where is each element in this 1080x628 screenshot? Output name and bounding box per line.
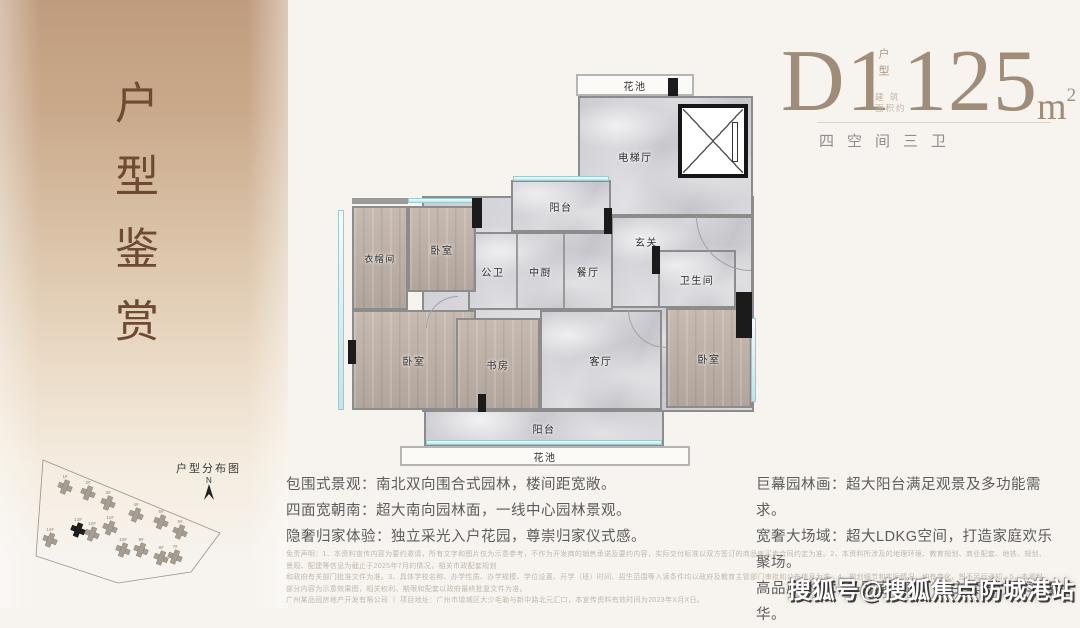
feature-line: 包围式景观：南北双向围合式园林，楼间距宽敞。	[286, 472, 726, 498]
building-marker	[83, 525, 101, 543]
building-label: 1#	[62, 474, 68, 479]
building-marker	[132, 541, 150, 559]
building-label: 2#	[85, 480, 91, 485]
area-unit-sup: 2	[1067, 85, 1077, 106]
room-label: 卧室	[431, 242, 454, 257]
building-label: 9#	[138, 537, 144, 542]
promo-page: { "sidebar": { "title": "户型鉴赏" }, "heade…	[0, 0, 1080, 608]
building-label: 3#	[105, 490, 111, 495]
room-label: 卧室	[698, 351, 721, 366]
feature-line: 四面宽朝南：超大南向园林面，一线中心园林景观。	[286, 498, 726, 524]
building-marker	[56, 478, 74, 496]
room-midband: 公卫 中厨 餐厅	[468, 232, 613, 310]
column	[736, 292, 752, 338]
column	[652, 246, 660, 274]
floor-plan: 花池 电梯厅 阳台 玄关 卫生间 公卫 中厨 餐厅 卧室 衣帽间 卧室 书房	[328, 60, 764, 472]
plan-subtitle: 四空间三卫	[819, 130, 959, 151]
area-prefix-line1: 建 筑	[875, 92, 907, 103]
room-bedroom-top-left: 卧室	[408, 206, 476, 292]
building-marker-highlight	[69, 521, 87, 539]
building-label: 11#	[106, 515, 114, 520]
area-value: 125	[903, 38, 1038, 126]
column	[472, 198, 482, 228]
area-unit: m2	[1037, 86, 1076, 126]
feature-list-left: 包围式景观：南北双向围合式园林，楼间距宽敞。四面宽朝南：超大南向园林面，一线中心…	[286, 472, 726, 550]
building-label: 7#	[172, 544, 178, 549]
feature-line: 巨幕园林画：超大阳台满足观景及多功能需求。	[756, 472, 1066, 524]
disclaimer-line: 免责声明：1、本资料宣传内容为要约邀请，所有文字和图片仅为示意参考，不作为开发商…	[286, 549, 1048, 572]
building-label: 12#	[88, 521, 96, 526]
plan-code-label: 户型	[875, 48, 891, 82]
window	[426, 440, 662, 445]
room-label: 阳台	[533, 421, 556, 436]
room-label: 卧室	[403, 353, 426, 368]
building-marker	[152, 549, 170, 567]
room-public-bath: 公卫	[470, 234, 516, 308]
room-label: 客厅	[590, 353, 613, 368]
area-prefix-label: 建 筑 面积约	[875, 92, 907, 114]
elevator-shaft	[678, 104, 748, 178]
plan-info-header: D1 户型 建 筑 面积约 125 m2 四空间三卫	[775, 30, 1075, 160]
room-label: 中厨	[529, 264, 552, 279]
room-kitchen: 中厨	[516, 234, 564, 308]
building-marker	[114, 541, 132, 559]
page-title: 户型鉴赏	[100, 80, 164, 370]
building-label: 10#	[119, 537, 127, 542]
building-label: 5#	[158, 509, 164, 514]
building-marker	[99, 494, 117, 512]
room-label: 餐厅	[577, 264, 600, 279]
midband-cells: 公卫 中厨 餐厅	[470, 234, 611, 308]
room-label: 花池	[624, 78, 647, 93]
room-cloakroom: 衣帽间	[352, 206, 408, 310]
room-study: 书房	[456, 318, 540, 410]
room-label: 卫生间	[680, 272, 715, 287]
building-marker	[79, 484, 97, 502]
site-plan-title: 户型分布图	[176, 460, 241, 476]
building-marker	[127, 506, 145, 524]
room-label: 衣帽间	[364, 252, 396, 265]
room-label: 电梯厅	[618, 149, 653, 164]
room-balcony-top: 阳台	[511, 180, 611, 232]
wall-band	[352, 198, 408, 204]
room-label: 阳台	[550, 199, 573, 214]
building-marker	[101, 519, 119, 537]
room-label: 公卫	[481, 264, 504, 279]
watermark: 搜狐号@搜狐焦点防城港站	[788, 571, 1075, 605]
building-label: 8#	[158, 545, 164, 550]
feature-line: 隐奢归家体验：独立采光入户花园，尊崇归家仪式感。	[286, 524, 726, 550]
room-label: 花池	[534, 449, 557, 464]
building-label: 14#	[46, 527, 54, 532]
building-label: 4#	[133, 502, 139, 507]
elevator-door	[732, 122, 738, 162]
column	[604, 208, 612, 234]
building-marker	[152, 513, 170, 531]
room-flower-pool-bottom: 花池	[400, 446, 690, 466]
column	[348, 340, 356, 364]
building-marker	[41, 531, 59, 549]
building-label: 13#	[74, 517, 82, 522]
area-prefix-line2: 面积约	[875, 103, 907, 114]
room-label: 书房	[487, 357, 510, 372]
building-marker	[171, 523, 189, 541]
compass-north-label: N	[206, 476, 212, 485]
room-dining: 餐厅	[563, 234, 611, 308]
header-divider	[817, 122, 1051, 123]
window	[408, 198, 474, 203]
column	[478, 394, 486, 412]
building-marker	[166, 548, 184, 566]
compass-arrow-icon	[204, 484, 214, 500]
column	[668, 78, 678, 96]
window	[513, 176, 609, 181]
building-label: 6#	[177, 519, 183, 524]
site-plan: 1#2#3#4#5#6#14#13#12#11#10#9#8#7# 户型分布图 …	[28, 438, 264, 602]
window	[338, 210, 344, 410]
